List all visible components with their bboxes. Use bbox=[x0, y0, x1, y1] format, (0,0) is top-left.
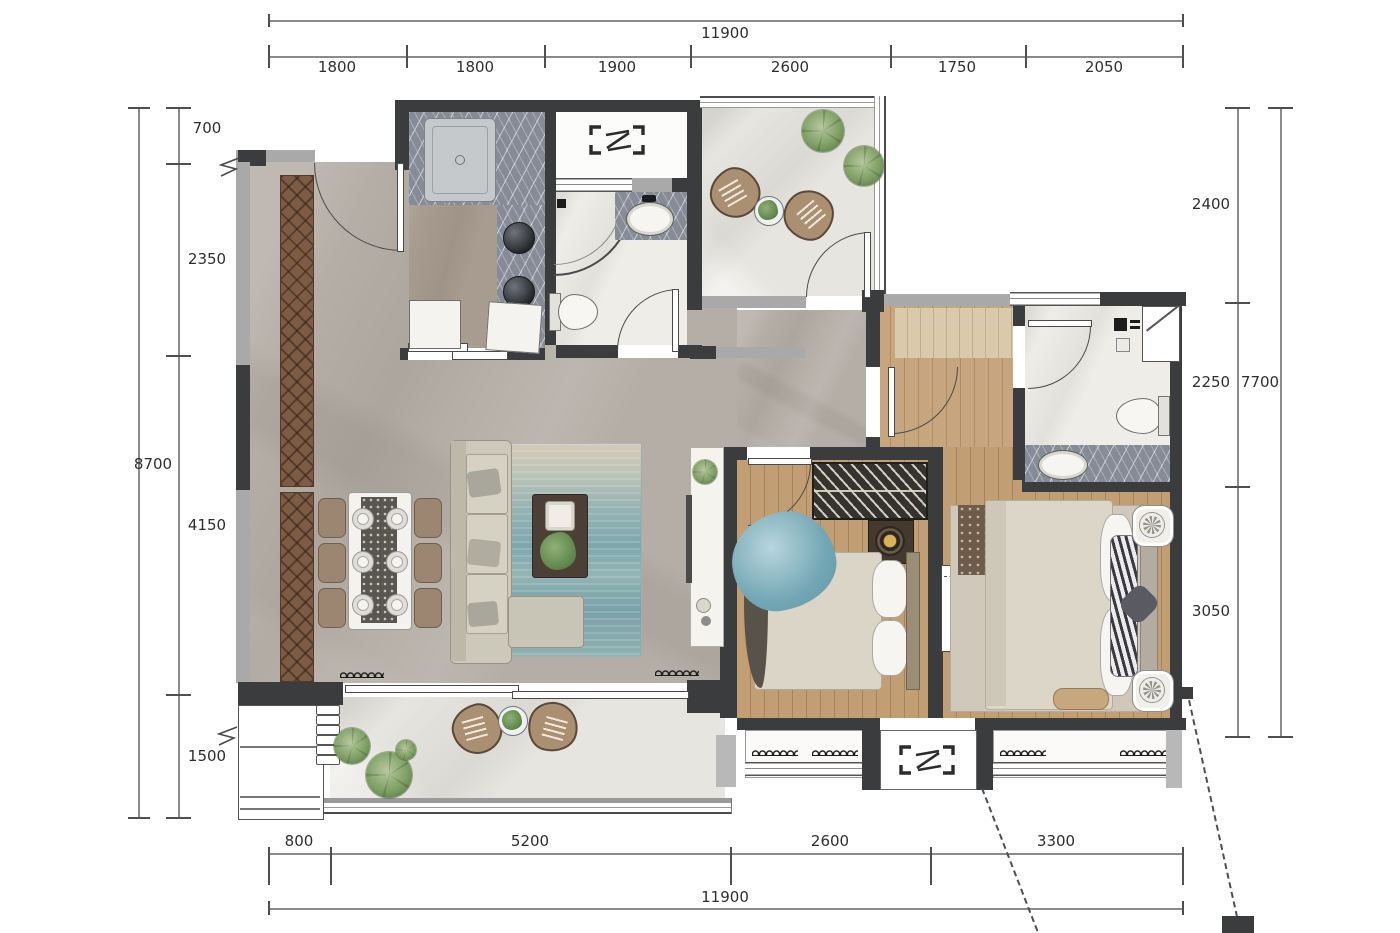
nightstand-ornate bbox=[1132, 505, 1174, 547]
wall-segment bbox=[810, 447, 928, 460]
ottoman bbox=[508, 596, 584, 648]
equipment-louver bbox=[316, 715, 340, 725]
plant bbox=[540, 532, 576, 570]
wall-segment bbox=[716, 735, 736, 787]
wall-segment bbox=[236, 490, 250, 683]
wall-segment bbox=[395, 100, 702, 112]
bedroom-small-door-leaf bbox=[748, 458, 812, 465]
wall-segment bbox=[862, 718, 880, 790]
bed-bench bbox=[1053, 688, 1109, 710]
balcony-bush bbox=[396, 740, 416, 760]
wall-segment bbox=[556, 345, 618, 358]
wall-segment bbox=[395, 112, 409, 170]
wall-segment bbox=[1013, 388, 1025, 480]
wall-segment bbox=[884, 294, 1010, 306]
wardrobe bbox=[812, 462, 928, 520]
dim-bottom-seg: 800 bbox=[259, 833, 339, 849]
dining-chair bbox=[414, 543, 442, 583]
refrigerator bbox=[409, 300, 461, 349]
plant bbox=[693, 460, 717, 484]
leader-line bbox=[1188, 700, 1238, 917]
equipment-louver bbox=[316, 705, 340, 715]
dining-chair bbox=[318, 588, 346, 628]
bathroom-2-sink bbox=[1038, 450, 1088, 480]
dim-line bbox=[1237, 107, 1239, 737]
wall-segment bbox=[737, 718, 875, 730]
pillow bbox=[872, 560, 908, 618]
dim-left-seg: 1500 bbox=[184, 748, 230, 764]
dim-top-seg: 1800 bbox=[297, 59, 377, 75]
window-coil-icon bbox=[812, 746, 858, 756]
terrace-tree bbox=[802, 110, 844, 152]
bathroom-2-door-leaf bbox=[1028, 320, 1092, 327]
wall-segment bbox=[1182, 687, 1193, 699]
window-break-icon bbox=[217, 726, 239, 746]
dim-right-seg: 2400 bbox=[1188, 196, 1234, 212]
wall-segment bbox=[672, 178, 687, 192]
window-coil-icon bbox=[1120, 746, 1166, 756]
balcony-sliding-door bbox=[345, 685, 519, 693]
headboard bbox=[906, 552, 920, 690]
plant bbox=[758, 200, 778, 220]
terrace-tree bbox=[844, 146, 884, 186]
window-bay-left bbox=[238, 705, 324, 820]
place-setting bbox=[352, 551, 374, 573]
ac-unit-symbol-icon bbox=[586, 122, 648, 158]
dim-left-seg: 4150 bbox=[184, 517, 230, 533]
entry-door-leaf bbox=[397, 163, 404, 252]
shower-head-icon bbox=[557, 199, 566, 208]
sofa-pillow bbox=[467, 538, 502, 567]
dim-line bbox=[178, 107, 180, 818]
entry-wardrobe bbox=[280, 492, 314, 682]
equipment-louver bbox=[316, 725, 340, 735]
entry-wardrobe bbox=[280, 175, 314, 487]
dim-bottom-seg: 3300 bbox=[1016, 833, 1096, 849]
dim-top-seg: 2050 bbox=[1064, 59, 1144, 75]
dim-line bbox=[268, 20, 1183, 22]
wall-segment bbox=[687, 100, 702, 310]
dim-top-total: 11900 bbox=[685, 25, 765, 41]
place-setting bbox=[386, 551, 408, 573]
wall-segment bbox=[737, 447, 747, 460]
dining-chair bbox=[414, 498, 442, 538]
window-coil-icon bbox=[752, 746, 798, 756]
dim-left-seg: 2350 bbox=[184, 251, 230, 267]
balcony-railing bbox=[318, 798, 732, 814]
wall-segment bbox=[980, 718, 1186, 730]
window-break-icon bbox=[219, 157, 241, 177]
floor-hallway-threshold bbox=[895, 308, 1013, 358]
stove-burner bbox=[503, 222, 535, 254]
pillow bbox=[872, 620, 908, 676]
dim-line bbox=[1280, 107, 1282, 737]
bathroom-1-door-leaf bbox=[672, 289, 679, 352]
bathroom-1-sink bbox=[626, 202, 674, 236]
window-bathroom-1 bbox=[556, 178, 632, 192]
place-setting bbox=[352, 594, 374, 616]
balcony-sliding-door bbox=[512, 691, 689, 699]
window-coil-icon bbox=[655, 666, 699, 676]
wall-segment bbox=[975, 718, 993, 790]
wall-segment bbox=[1013, 306, 1025, 326]
shower-head-icon bbox=[1114, 318, 1127, 331]
dining-chair bbox=[414, 588, 442, 628]
window-coil-icon bbox=[340, 668, 384, 678]
dining-chair bbox=[318, 543, 346, 583]
terrace-railing bbox=[700, 96, 886, 108]
leader-target-block bbox=[1222, 916, 1254, 933]
terrace-door-leaf bbox=[864, 232, 871, 298]
dim-top-seg: 2600 bbox=[750, 59, 830, 75]
dim-top-seg: 1800 bbox=[435, 59, 515, 75]
dim-bottom-total: 11900 bbox=[685, 889, 765, 905]
wall-segment bbox=[687, 680, 737, 713]
wall-segment bbox=[236, 162, 250, 365]
window-bathroom-2-top bbox=[1010, 292, 1102, 306]
faucet-icon bbox=[642, 195, 656, 202]
wall-segment bbox=[1166, 730, 1182, 788]
sofa-pillow bbox=[467, 601, 499, 628]
dim-left-seg: 700 bbox=[184, 120, 230, 136]
dim-top-seg: 1750 bbox=[917, 59, 997, 75]
dim-bottom-seg: 2600 bbox=[790, 833, 870, 849]
sofa-pillow bbox=[466, 468, 501, 498]
sink-drain bbox=[455, 155, 465, 165]
window-bathroom-2-right bbox=[1142, 306, 1180, 362]
plant bbox=[502, 710, 522, 730]
floor-living-extension bbox=[737, 310, 877, 447]
wall-segment bbox=[702, 296, 806, 308]
place-setting bbox=[386, 594, 408, 616]
decor-vase bbox=[696, 598, 711, 613]
dim-line bbox=[268, 853, 1183, 855]
kitchen-appliance bbox=[485, 301, 542, 354]
bed-foot-drape bbox=[986, 501, 1006, 706]
wall-segment bbox=[866, 295, 880, 367]
balcony-tree bbox=[334, 728, 370, 764]
dim-bottom-seg: 5200 bbox=[490, 833, 570, 849]
wall-segment bbox=[690, 346, 716, 359]
terrace-railing bbox=[874, 96, 886, 298]
tray bbox=[545, 501, 575, 531]
place-setting bbox=[386, 508, 408, 530]
dim-right-seg: 3050 bbox=[1188, 603, 1234, 619]
dim-left-total: 8700 bbox=[130, 456, 176, 472]
dim-top-seg: 1900 bbox=[577, 59, 657, 75]
dining-chair bbox=[318, 498, 346, 538]
toilet-tank bbox=[1158, 396, 1170, 436]
wall-segment bbox=[236, 365, 250, 490]
dim-right-seg: 2250 bbox=[1188, 374, 1234, 390]
kitchen-sliding-door bbox=[452, 351, 508, 360]
dim-line bbox=[268, 908, 1183, 910]
ac-unit-symbol-icon bbox=[896, 742, 958, 778]
floor-plan-canvas: 11900 1800 1800 1900 2600 1750 2050 800 … bbox=[0, 0, 1400, 933]
leader-line bbox=[981, 788, 1038, 931]
wall-segment bbox=[238, 682, 343, 705]
decor-vase bbox=[701, 616, 711, 626]
window-coil-icon bbox=[1000, 746, 1046, 756]
wall-segment bbox=[716, 347, 805, 358]
nightstand-ornate bbox=[1132, 670, 1174, 712]
wall-segment bbox=[632, 178, 674, 192]
hallway-door-leaf bbox=[888, 367, 895, 437]
dim-right-total: 7700 bbox=[1238, 374, 1282, 390]
place-setting bbox=[352, 508, 374, 530]
toilet bbox=[1116, 398, 1162, 434]
tv bbox=[686, 495, 692, 583]
